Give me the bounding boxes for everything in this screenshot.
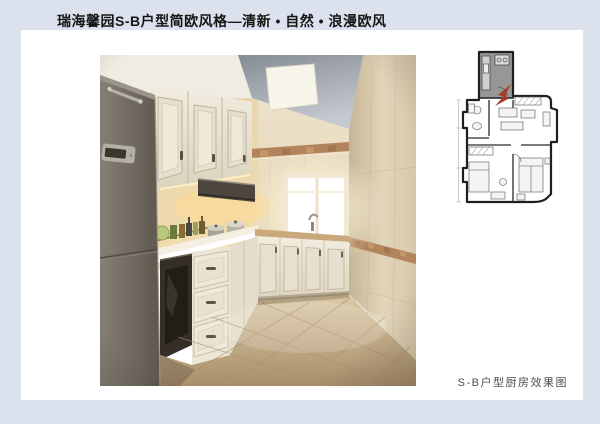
floor-plan-svg (455, 50, 567, 212)
photo-vignette (100, 55, 416, 386)
floor-plan (455, 50, 567, 212)
photo-caption: S-B户型厨房效果图 (420, 374, 568, 390)
floorplan-kitchen-highlight (479, 52, 513, 98)
kitchen-photo (100, 55, 416, 386)
floorplan-dimension-ticks (457, 100, 462, 202)
page-title: 瑞海馨园S-B户型简欧风格—清新 • 自然 • 浪漫欧风 (57, 11, 537, 31)
floorplan-furniture (469, 104, 551, 200)
kitchen-photo-svg (100, 55, 416, 386)
